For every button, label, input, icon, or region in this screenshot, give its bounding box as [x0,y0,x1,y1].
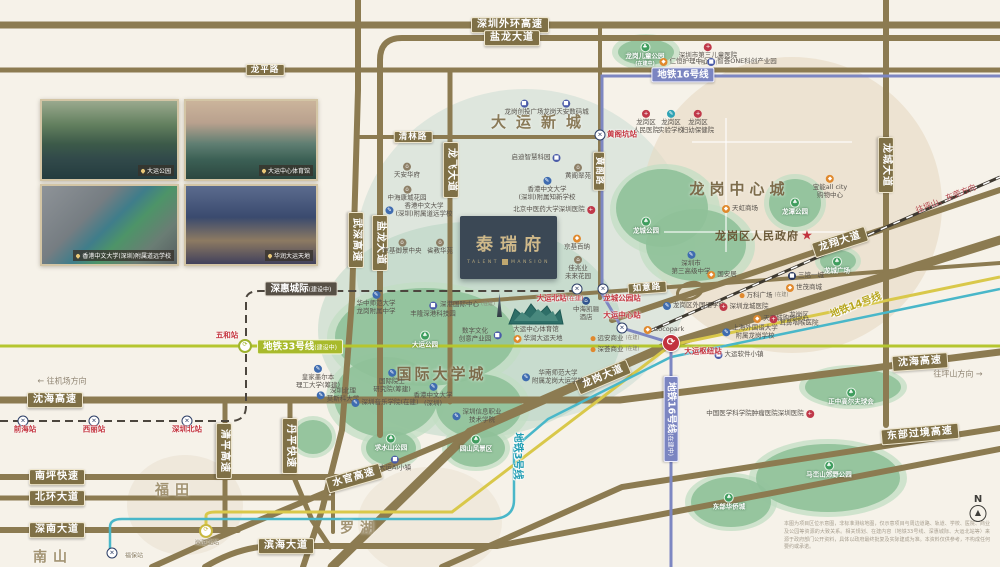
poi-label: ■龙岗天安数码城 [543,100,589,117]
hospital-icon: + [694,110,702,118]
poi-label: 深港国际中心(在建) [440,293,502,317]
poi-label: +深圳龙城医院 [720,303,769,311]
road-label: 深南大道 [29,522,85,538]
poi-label: 龙岗区人民政府★ [715,231,813,244]
school-icon: ✎ [722,328,730,336]
biz-icon: ■ [707,58,715,66]
school-icon: ✎ [453,412,461,420]
biz-icon: ■ [493,331,501,339]
shop-icon: ◆ [826,175,834,183]
shop-icon: ◆ [514,335,522,343]
metro-line-label: 地铁33号线(建设中) [257,339,343,354]
hospital-icon: + [720,303,728,311]
home-icon: ⌂ [403,163,411,171]
road-label-text: 滨海大道 [264,540,308,551]
road-label-text: 龙岗大道 [580,363,625,390]
poi-label-text: 龙岗区人民政府 [715,231,799,244]
road-label: 龙翔大道 [811,226,869,258]
poi-label-text: Cocopark [654,326,685,334]
biz-icon: ■ [391,456,399,464]
project-name-en: TALENT MANSION [467,259,550,265]
home-icon: ⌂ [574,164,582,172]
station-label: 西丽站 [83,426,106,435]
school-icon: ✎ [522,373,530,381]
tree-icon: ♣ [471,435,481,445]
station-marker-icon: ✕ [572,284,583,295]
direction-label: 往坪山方向 → [933,369,982,378]
metro-label-text: 地铁16号线 [657,69,708,80]
area-label: 南山 [27,550,73,567]
poi-label-text: 深港国际中心 [440,301,479,309]
direction-label-text: 往坪山、东莞方向 [915,183,978,215]
road-label: 清平高速 [216,423,232,479]
hospital-icon: + [704,43,712,51]
station-label-text: 福保站 [125,552,143,559]
station-label: 大运枢纽站 [684,348,722,357]
shop-icon: ◆ [644,326,652,334]
area-label: 龙岗中心城 [684,181,789,199]
metro-label-text: 深惠城际 [271,283,309,294]
poi-label-text: 天虹商场 [732,205,758,213]
logo-en-right: MANSION [511,260,550,265]
park-label-text: 龙城公园 [633,228,659,236]
biz-icon: ■ [520,100,528,108]
poi-label-text: 龙岗创投广场 [505,109,544,117]
poi-label: ◆仁恒护理中心 [660,58,709,66]
tree-icon: ♣ [420,331,430,341]
area-label: 罗湖 [334,521,380,538]
station-label: 岗厦北站 [195,539,219,546]
poi-label: ◆国安居 [707,271,737,279]
road-label: 北环大道 [29,490,85,506]
park-label: ♣大运公园 [412,331,438,350]
poi-label: 深荟商业(在建) [591,346,640,354]
dot-icon [740,294,745,299]
station-label-text: 大运枢纽站 [684,347,722,356]
park-label-text: 东部华侨城 [713,504,746,512]
poi-label: ⌂省教华苑 [427,239,453,256]
station-label: 龙城公园站 [603,295,641,304]
station-label-text: 岗厦北站 [195,539,219,546]
station-label: 大运北站(在建) [537,295,584,304]
road-label-text: 北环大道 [35,492,79,503]
park-label: ♣东部华侨城 [713,493,746,512]
home-icon: ⌂ [398,239,406,247]
metro-label-text: 地铁3号线 [512,433,523,480]
tree-icon: ♣ [790,198,800,208]
poi-label-text: 华中师范大学 龙岗附属中学 [357,300,396,315]
poi-label: ◆世茂商城 [786,284,822,292]
hospital-icon: + [587,206,595,214]
poi-label: ✎深圳市 第三高级中学 [672,251,711,275]
metro-label-text: 地铁33号线 [263,341,314,352]
metro-label-suffix: (建设中) [314,344,337,351]
poi-label-text: 远安商业 [598,335,624,343]
area-label-text: 南山 [33,550,73,566]
location-map: 大运公园 大运中心体育馆 香港中文大学(深圳)附属道远学校 华润大运天地 深圳外… [0,0,1000,567]
poi-label-text: 深圳龙城医院 [730,303,769,311]
station-marker-icon: ✕ [595,130,606,141]
park-label: ♣正中高尔夫球会 [828,388,874,407]
interchange-station-icon: ⟳ [199,524,213,538]
poi-label-text: 龙岗区外国语学校 [673,302,725,310]
poi-label-text: 中国医学科学院肿瘤医院深圳医院 [706,410,804,418]
direction-label: 往坪山、东莞方向 [915,183,978,216]
poi-label-text: 大运软件小镇 [725,351,764,359]
tree-icon: ♣ [824,461,834,471]
poi-label: ⌂京基御景中央 [383,239,422,256]
poi-label: ◆京基百纳 [564,235,590,252]
park-label: ♣求水山公园 [375,434,408,453]
road-label: 南坪快速 [29,469,85,485]
poi-label-text: 京基御景中央 [383,248,422,256]
map-labels-layer: 深圳外环高速盐龙大道龙平路清林路武深高速盐龙大道龙飞大道黄阁路如意路龙城大道龙翔… [0,0,1000,567]
poi-label: ⌂中海康城花园 [388,186,427,203]
park-label: ♣龙城广场 [824,257,850,276]
area-label: 福田 [149,483,195,500]
dot-icon [591,348,596,353]
school-icon: ✎ [372,291,380,299]
poi-label: 北京中医药大学深圳医院+ [513,206,595,214]
station-label: 大运中心站 [603,312,641,321]
poi-label-text: 深荟商业 [598,346,624,354]
school-icon: ✎ [314,365,322,373]
poi-label: ✎国际院士 研究院(筹建) [373,369,411,393]
metro-line-label: 地铁16号线 [651,67,714,82]
road-label-text: 水官高速 [331,466,376,489]
road-label: 清林路 [394,131,433,143]
area-label-text: 福田 [155,483,195,499]
station-label-text: 大运北站 [537,294,567,303]
tree-icon: ♣ [724,493,734,503]
poi-label-text: 香港中文大学 (深圳)附属知新学校 [518,186,575,201]
road-label: 水官高速 [325,463,383,494]
poi-label-text: 仁恒护理中心 [670,58,709,66]
tower-icon [497,293,502,317]
road-label-text: 龙飞大道 [446,148,457,192]
poi-label-text: 中海凯骊 酒店 [573,306,599,321]
poi-label: ✎深圳信息职业 技术学院 [453,408,502,423]
shop-icon: ◆ [786,284,794,292]
home-icon: ⌂ [574,256,582,264]
road-label: 龙飞大道 [443,142,459,198]
poi-label-text: 大运AI小镇 [379,465,411,473]
poi-label-text: 佳兆业 未来花园 [565,265,591,280]
station-label: 黄阁坑站 [607,131,637,140]
star-icon: ★ [801,231,813,243]
station-label-text: 黄阁坑站 [607,130,637,139]
poi-label: ✎香港中文大学 (深圳) [414,383,453,407]
area-label: 大运新城 [481,114,591,132]
poi-label-text: 三馆一城 [798,272,824,280]
road-label-text: 东部过境高速 [887,425,954,442]
shop-icon: ◆ [722,205,730,213]
poi-label: ■智荟ONE科创产业园 [707,58,777,66]
road-label: 盐龙大道 [484,30,540,46]
poi-label: 大运中心体育馆 [513,326,559,334]
poi-label: ◆宝能all city 购物中心 [813,175,847,199]
poi-label-text: 智荟ONE科创产业园 [717,58,777,66]
poi-label-suffix: (在建) [775,293,789,299]
poi-label-text: 香港中文大学 (深圳) [414,392,453,407]
project-logo: 泰瑞府 TALENT MANSION [460,216,557,279]
road-label: 沈海高速 [27,392,83,408]
road-label-text: 清平高速 [219,429,230,473]
poi-label-text: 华润大运天地 [524,335,563,343]
park-label: ♣龙城公园 [633,217,659,236]
poi-label: ✎香港中文大学 (深圳)附属道远学校 [385,202,452,217]
tree-icon: ♣ [386,434,396,444]
poi-label: ◆华润大运天地 [514,335,563,343]
metro-label-text: 地铁16号线 [666,382,677,433]
station-label-text: 五和站 [216,331,239,340]
poi-label: 启迪智慧科园■ [512,154,561,162]
poi-label-suffix: (在建) [481,302,495,308]
station-label-text: 龙城公园站 [603,294,641,303]
station-label-text: 大运中心站 [603,311,641,320]
poi-label-text: 深圳信息职业 技术学院 [463,408,502,423]
road-label-text: 如意路 [632,282,661,294]
poi-label-text: 国安居 [717,271,737,279]
poi-label-text: 北京中医药大学深圳医院 [513,206,585,214]
poi-label: 万科广场(在建) [740,292,789,300]
poi-label: +龙岗区 妇幼保健院 [682,110,715,134]
poi-label: ■三馆一城 [788,272,824,280]
transit-hub-icon: ⟳ [662,334,680,352]
metro-line-label: 地铁3号线 [511,433,523,480]
road-label-text: 黄阁路 [594,157,604,186]
shop-icon: ◆ [707,271,715,279]
tree-icon: ♣ [832,257,842,267]
poi-label: ◆Cocopark [644,326,685,334]
poi-label: ✎华南师范大学 附属龙岗大运学校 [522,369,584,384]
park-label-text: 马峦山郊野公园 [806,472,852,480]
poi-label: ✎龙岗区 实验学校 [658,110,684,134]
poi-label-text: 京基百纳 [564,244,590,252]
park-label-text: 园山风景区 [460,446,493,454]
road-label-text: 龙城大道 [881,143,892,187]
area-label-text: 龙岗中心城 [689,180,789,198]
road-label-text: 清林路 [399,132,428,142]
poi-label-text: 启迪智慧科园 [512,154,551,162]
teal-school-icon: ✎ [667,110,675,118]
home-icon: ⌂ [436,239,444,247]
school-icon: ✎ [317,391,325,399]
metro-label-suffix: (建设中) [309,286,332,293]
poi-label: 数字文化 创意产业园■ [459,327,502,342]
poi-label: ✎华中师范大学 龙岗附属中学 [357,291,396,315]
station-marker-icon: ✕ [107,548,118,559]
road-label: 龙城大道 [878,137,894,193]
park-label: ♣龙潭公园 [782,198,808,217]
poi-label: ✎龙岗区外国语学校 [663,302,725,310]
metro-label-text: 地铁14号线 [829,291,883,321]
area-label-text: 罗湖 [340,521,380,537]
home-icon: ⌂ [403,186,411,194]
road-label-text: 武深高速 [351,218,362,262]
school-icon: ✎ [385,206,393,214]
road-label: 黄阁路 [593,152,605,191]
poi-label-suffix: (在建) [626,336,640,342]
station-label: 深圳北站 [172,426,202,435]
road-label-text: 龙翔大道 [817,230,862,254]
tree-icon: ♣ [640,42,650,52]
road-label-text: 沈海高速 [898,355,943,369]
school-icon: ✎ [663,302,671,310]
road-label-text: 深南大道 [35,524,79,535]
road-label: 龙平路 [246,64,285,76]
interchange-station-icon: ⟳ [238,339,252,353]
station-marker-icon: ✕ [617,323,628,334]
shop-icon: ◆ [573,235,581,243]
park-label-text: 正中高尔夫球会 [828,399,874,407]
compass: N ▲ [970,494,987,522]
north-label: N [970,494,987,505]
compass-icon: ▲ [970,505,987,522]
poi-label-text: 龙岗区 妇幼保健院 [682,119,715,134]
poi-label: ■龙岗创投广场 [505,100,544,117]
biz-icon: ■ [553,154,561,162]
poi-label-text: 深圳音乐学院(在建) [361,399,418,407]
poi-label-text: 龙岗天安数码城 [543,109,589,117]
metro-line-label: 地铁14号线 [829,291,884,321]
biz-icon: ■ [429,302,437,310]
poi-label: ✎深圳音乐学院(在建) [351,399,418,407]
poi-label-text: 万科广场 [747,292,773,300]
poi-label-text: 数字文化 创意产业园 [459,327,492,342]
poi-label: ■大运AI小镇 [379,456,411,473]
poi-label-text: 深圳市 第三高级中学 [672,260,711,275]
hospital-icon: + [806,410,814,418]
hospital-icon: + [642,110,650,118]
road-label: 东部过境高速 [880,423,959,446]
navy-icon: ■ [788,272,796,280]
poi-label-text: 省教华苑 [427,248,453,256]
station-label: 五和站 [216,332,239,341]
poi-label: ⌂天安华府 [394,163,420,180]
dot-icon [591,337,596,342]
poi-label-text: 国际院士 研究院(筹建) [373,378,411,393]
road-label: 丹平快速 [282,418,298,474]
biz-icon: ■ [562,100,570,108]
school-icon: ✎ [388,369,396,377]
logo-en-left: TALENT [467,260,499,265]
direction-label: ← 往机场方向 [37,376,86,385]
poi-label: ◆天虹商场 [722,205,758,213]
logo-seal-icon [502,259,508,265]
hospital-icon: + [770,315,778,323]
road-label-text: 沈海高速 [33,394,77,405]
station-label: 前海站 [14,426,37,435]
park-label-text: 求水山公园 [375,445,408,453]
school-icon: ✎ [687,251,695,259]
park-label-text: 龙潭公园 [782,209,808,217]
poi-label-text: 宝能all city 购物中心 [813,184,847,199]
poi-label: 远安商业(在建) [591,335,640,343]
direction-label-text: ← 往机场方向 [37,376,86,385]
station-label-text: 前海站 [14,425,37,434]
direction-label-text: 往坪山方向 → [933,369,982,378]
road-label: 滨海大道 [258,538,314,554]
poi-label-suffix: (在建) [626,347,640,353]
metro-line-label: 地铁16号线(在建中) [663,376,678,462]
road-label-text: 南坪快速 [35,471,79,482]
road-label-text: 盐龙大道 [490,32,534,43]
park-label-suffix: (在建中) [635,62,655,68]
poi-label: ✎香港中文大学 (深圳)附属知新学校 [518,177,575,201]
station-label-text: 深圳北站 [172,425,202,434]
road-label: 武深高速 [348,212,364,268]
metro-label-suffix: (在建中) [667,433,674,456]
station-label-text: 西丽站 [83,425,106,434]
metro-line-label: 深惠城际(建设中) [265,281,338,296]
park-label: ♣马峦山郊野公园 [806,461,852,480]
road-label-text: 龙平路 [251,65,280,75]
poi-label-text: 华南师范大学 附属龙岗大运学校 [532,369,584,384]
shop-icon: ◆ [660,58,668,66]
poi-label: +龙岗区 耳鼻咽喉医院 [770,311,819,326]
tree-icon: ♣ [846,388,856,398]
disclaimer: 本图为项目区位示意图，非标准测绘地图，仅示意项目与周边道路、轨道、学校、医院、商… [784,521,990,552]
poi-label-text: 龙岗区 实验学校 [658,119,684,134]
project-name-cn: 泰瑞府 [469,230,548,255]
poi-label: 中国医学科学院肿瘤医院深圳医院+ [706,410,814,418]
road-label-text: 丹平快速 [285,424,296,468]
station-label: 福保站 [125,552,143,559]
poi-label-text: 龙岗区 耳鼻咽喉医院 [780,311,819,326]
poi-label-text: 大运中心体育馆 [513,326,559,334]
park-label: ♣园山风景区 [460,435,493,454]
poi-label-text: 世茂商城 [796,284,822,292]
shop-icon: ◆ [753,315,761,323]
tree-icon: ♣ [641,217,651,227]
park-label-text: 大运公园 [412,342,438,350]
school-icon: ✎ [429,383,437,391]
school-icon: ✎ [543,177,551,185]
station-label-suffix: (在建) [567,296,584,303]
poi-label-text: 天安华府 [394,172,420,180]
poi-label-text: 香港中文大学 (深圳)附属道远学校 [395,202,452,217]
road-label-text: 深圳外环高速 [477,19,543,30]
poi-label: ⌂佳兆业 未来花园 [565,256,591,280]
park-label-text: 龙城广场 [824,268,850,276]
school-icon: ✎ [351,399,359,407]
